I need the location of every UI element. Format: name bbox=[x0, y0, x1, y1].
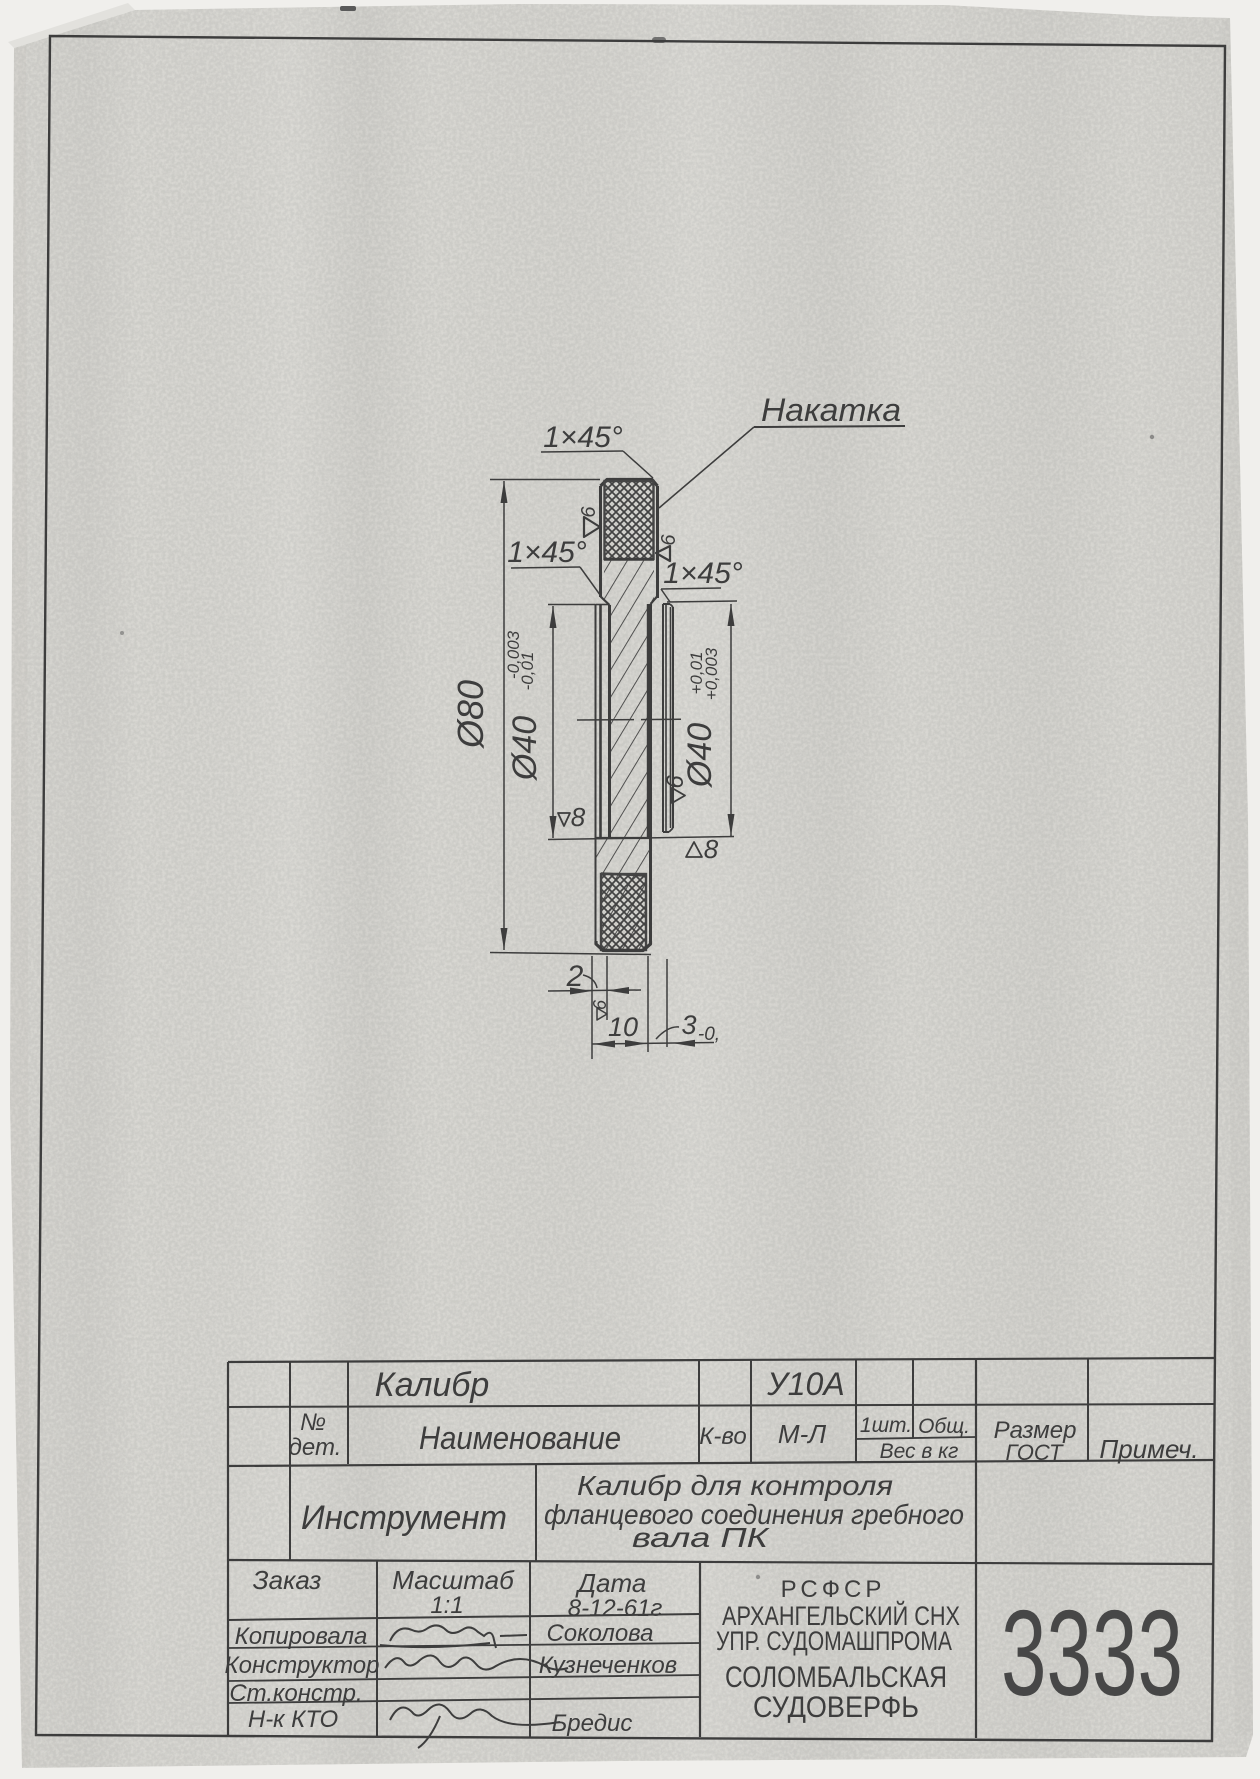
svg-text:Ø80: Ø80 bbox=[450, 680, 491, 749]
svg-text:3: 3 bbox=[681, 1010, 696, 1040]
svg-text:вала ПК: вала ПК bbox=[632, 1522, 770, 1553]
svg-text:1×45°: 1×45° bbox=[507, 536, 587, 569]
svg-text:1×45°: 1×45° bbox=[543, 421, 623, 454]
svg-text:Вес в кг: Вес в кг bbox=[880, 1440, 959, 1463]
svg-text:Инструмент: Инструмент bbox=[301, 1499, 507, 1537]
svg-text:Масштаб: Масштаб bbox=[392, 1565, 515, 1595]
svg-text:Накатка: Накатка bbox=[761, 392, 901, 428]
svg-text:Дата: Дата bbox=[575, 1568, 647, 1598]
svg-text:К-во: К-во bbox=[699, 1423, 746, 1450]
svg-text:У10А: У10А bbox=[766, 1366, 844, 1402]
svg-text:Соколова: Соколова bbox=[546, 1620, 653, 1647]
svg-text:-0,: -0, bbox=[698, 1024, 720, 1045]
svg-text:+0,003: +0,003 bbox=[702, 647, 721, 700]
svg-text:М-Л: М-Л bbox=[778, 1419, 826, 1449]
svg-text:8: 8 bbox=[704, 834, 719, 864]
svg-text:2: 2 bbox=[566, 960, 584, 993]
svg-text:-0,01: -0,01 bbox=[518, 652, 537, 691]
svg-text:6: 6 bbox=[578, 506, 600, 518]
svg-text:Наименование: Наименование bbox=[419, 1420, 621, 1456]
svg-text:РСФСР: РСФСР bbox=[781, 1576, 886, 1603]
svg-text:1×45°: 1×45° bbox=[663, 557, 743, 590]
svg-text:10: 10 bbox=[608, 1012, 638, 1042]
svg-text:Н-к КТО: Н-к КТО bbox=[248, 1706, 338, 1733]
svg-text:ГОСТ: ГОСТ bbox=[1006, 1440, 1065, 1465]
svg-text:дет.: дет. bbox=[289, 1434, 342, 1461]
svg-text:3333: 3333 bbox=[1001, 1585, 1183, 1721]
svg-text:Ø40: Ø40 bbox=[506, 716, 544, 781]
svg-text:1шт.: 1шт. bbox=[860, 1414, 912, 1437]
svg-text:СУДОВЕРФЬ: СУДОВЕРФЬ bbox=[753, 1691, 919, 1724]
svg-text:Конструктор: Конструктор bbox=[225, 1652, 380, 1679]
svg-text:Калибр для контроля: Калибр для контроля bbox=[577, 1470, 893, 1501]
svg-text:8-12-61г: 8-12-61г bbox=[568, 1595, 663, 1622]
svg-text:Примеч.: Примеч. bbox=[1099, 1434, 1198, 1464]
svg-text:Бредис: Бредис bbox=[552, 1710, 633, 1737]
svg-text:1:1: 1:1 bbox=[430, 1592, 463, 1619]
svg-text:Заказ: Заказ bbox=[253, 1565, 322, 1595]
svg-text:Кузнеченков: Кузнеченков bbox=[539, 1652, 677, 1679]
svg-text:Калибр: Калибр bbox=[375, 1366, 490, 1404]
svg-text:6: 6 bbox=[658, 534, 680, 546]
svg-text:6: 6 bbox=[662, 775, 689, 789]
svg-text:Общ.: Общ. bbox=[918, 1415, 970, 1438]
svg-text:УПР. СУДОМАШПРОМА: УПР. СУДОМАШПРОМА bbox=[716, 1626, 952, 1656]
svg-text:Копировала: Копировала bbox=[235, 1623, 368, 1650]
svg-text:№: № bbox=[300, 1409, 326, 1436]
svg-text:СОЛОМБАЛЬСКАЯ: СОЛОМБАЛЬСКАЯ bbox=[725, 1661, 947, 1694]
svg-text:Ст.констр.: Ст.констр. bbox=[229, 1680, 362, 1707]
svg-text:8: 8 bbox=[571, 802, 586, 832]
